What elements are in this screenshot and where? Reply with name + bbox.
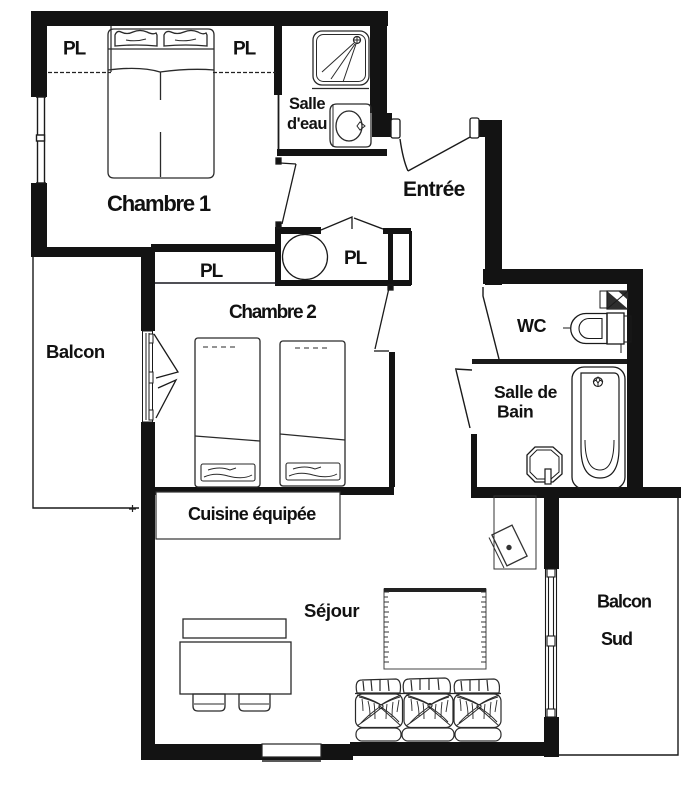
- svg-text:PL: PL: [233, 39, 257, 60]
- svg-text:Sud: Sud: [601, 629, 632, 649]
- svg-text:WC: WC: [517, 316, 546, 336]
- svg-text:Séjour: Séjour: [304, 600, 359, 621]
- svg-text:Balcon: Balcon: [46, 341, 105, 362]
- svg-text:Chambre 2: Chambre 2: [229, 302, 316, 323]
- svg-text:Salle de: Salle de: [494, 382, 558, 402]
- svg-text:Entrée: Entrée: [403, 178, 465, 201]
- svg-text:PL: PL: [344, 248, 368, 269]
- svg-text:Bain: Bain: [497, 402, 533, 422]
- svg-text:d'eau: d'eau: [287, 115, 327, 133]
- svg-text:Cuisine équipée: Cuisine équipée: [188, 504, 316, 524]
- svg-text:PL: PL: [200, 261, 224, 282]
- svg-text:PL: PL: [63, 39, 87, 60]
- svg-text:Salle: Salle: [289, 95, 325, 113]
- svg-text:Chambre 1: Chambre 1: [107, 191, 211, 216]
- svg-text:Balcon: Balcon: [597, 592, 651, 612]
